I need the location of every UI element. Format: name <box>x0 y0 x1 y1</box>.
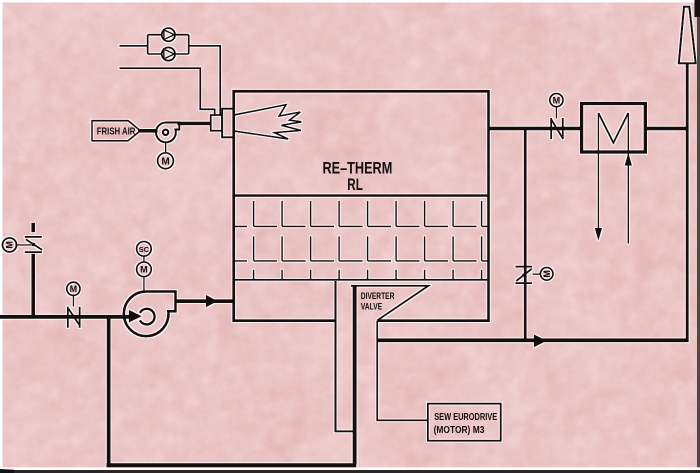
svg-text:(MOTOR) M3: (MOTOR) M3 <box>434 424 485 436</box>
svg-text:M: M <box>161 156 169 167</box>
svg-text:SEW EURODRIVE: SEW EURODRIVE <box>434 411 497 423</box>
svg-text:VALVE: VALVE <box>361 302 382 313</box>
svg-text:RL: RL <box>347 175 363 194</box>
svg-text:M: M <box>5 241 15 249</box>
svg-text:SC: SC <box>139 245 150 254</box>
svg-text:FRISH AIR: FRISH AIR <box>97 126 136 137</box>
svg-text:DIVERTER: DIVERTER <box>361 291 395 302</box>
svg-text:M: M <box>553 95 561 105</box>
svg-text:M: M <box>140 265 148 275</box>
svg-text:M: M <box>70 284 78 294</box>
svg-text:M: M <box>542 270 552 278</box>
